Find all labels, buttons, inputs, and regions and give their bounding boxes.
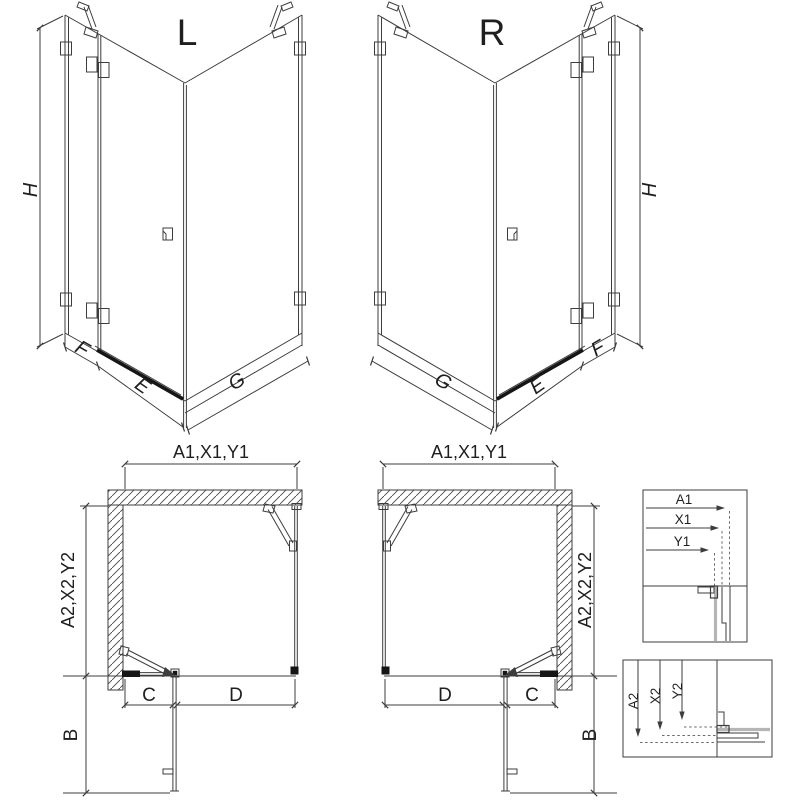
left-plan-side-wall	[108, 505, 123, 690]
detail-x1-label: X1	[675, 512, 692, 527]
right-plan-view: A1,X1,Y1 A2,X2,Y2 D C B	[378, 442, 617, 796]
left-3d-view: L H F E G	[20, 2, 310, 435]
left-view-title: L	[177, 12, 198, 53]
right-plan-c-dim: C	[525, 685, 539, 706]
detail-x2-label: X2	[648, 688, 663, 705]
right-plan-side-wall	[557, 505, 572, 690]
left-plan-side-dim: A2,X2,Y2	[58, 552, 78, 628]
left-plan-d-dim: D	[229, 685, 243, 706]
drawing-page: L H F E G R H F E G A1,X1,Y1 A2,X2,Y2 C …	[0, 0, 800, 800]
left-plan-geometry	[63, 461, 302, 796]
left-3d-geometry	[37, 2, 310, 435]
right-view-title: R	[479, 12, 506, 53]
right-height-label: H	[639, 182, 661, 197]
left-plan-c-dim: C	[142, 685, 156, 706]
left-e-label: E	[131, 373, 155, 399]
shower-enclosure-diagram: L H F E G R H F E G A1,X1,Y1 A2,X2,Y2 C …	[0, 0, 800, 800]
detail-a2-label: A2	[626, 693, 641, 710]
right-plan-top-dim: A1,X1,Y1	[431, 442, 507, 462]
right-plan-d-dim: D	[438, 685, 452, 706]
detail-box-horizontal-frame	[643, 490, 747, 642]
right-plan-top-wall	[378, 490, 572, 505]
detail-y2-label: Y2	[670, 683, 685, 700]
detail-a1-label: A1	[676, 492, 693, 507]
right-plan-b-dim: B	[580, 729, 601, 742]
right-g-label: G	[431, 368, 455, 395]
right-3d-geometry	[371, 2, 644, 435]
detail-box-horizontal: A1 X1 Y1	[643, 490, 747, 642]
detail-box-vertical: A2 X2 Y2	[623, 660, 772, 757]
left-plan-top-dim: A1,X1,Y1	[173, 442, 249, 462]
detail-y1-label: Y1	[674, 534, 691, 549]
left-plan-b-dim: B	[61, 729, 82, 742]
right-e-label: E	[526, 373, 550, 399]
left-height-label: H	[20, 182, 42, 197]
right-f-label: F	[587, 335, 610, 361]
right-3d-view: R H F E G	[371, 2, 662, 435]
right-plan-side-dim: A2,X2,Y2	[575, 552, 595, 628]
left-g-label: G	[225, 368, 249, 395]
left-plan-view: A1,X1,Y1 A2,X2,Y2 C D B	[58, 442, 302, 796]
left-f-label: F	[71, 336, 94, 362]
left-plan-top-wall	[108, 490, 302, 505]
